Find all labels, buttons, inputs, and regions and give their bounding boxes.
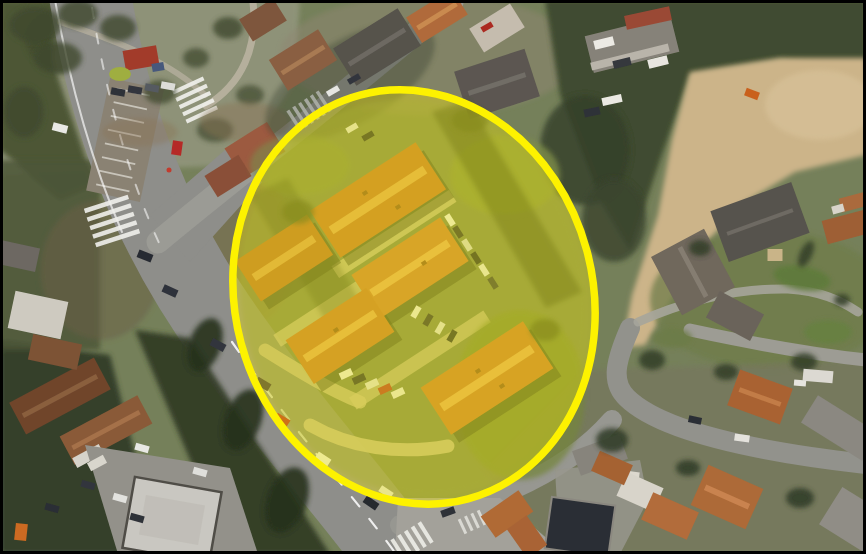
gazebo — [768, 249, 783, 261]
tree — [596, 428, 628, 452]
tree — [639, 350, 665, 370]
bush — [109, 67, 131, 81]
red-marker — [167, 168, 172, 173]
tree — [689, 240, 711, 256]
lawn — [652, 328, 692, 348]
map-canvas — [0, 0, 866, 554]
parked-car — [171, 140, 183, 155]
tree — [34, 42, 82, 74]
tree — [786, 488, 814, 508]
parked-car — [14, 523, 28, 541]
tree — [4, 86, 44, 138]
tree — [213, 17, 243, 39]
tree — [236, 85, 264, 105]
satellite-image — [0, 0, 866, 554]
map-shape — [582, 178, 646, 262]
tree — [100, 15, 136, 41]
tree — [58, 0, 98, 28]
tree — [676, 460, 700, 476]
tree — [791, 353, 817, 371]
lawn — [804, 320, 852, 344]
map-shape — [102, 118, 178, 146]
tree — [834, 294, 850, 306]
tree — [714, 364, 738, 380]
tree — [183, 48, 209, 68]
dark-roof-building — [545, 497, 616, 554]
parked-car — [794, 379, 806, 386]
tree — [9, 7, 61, 43]
